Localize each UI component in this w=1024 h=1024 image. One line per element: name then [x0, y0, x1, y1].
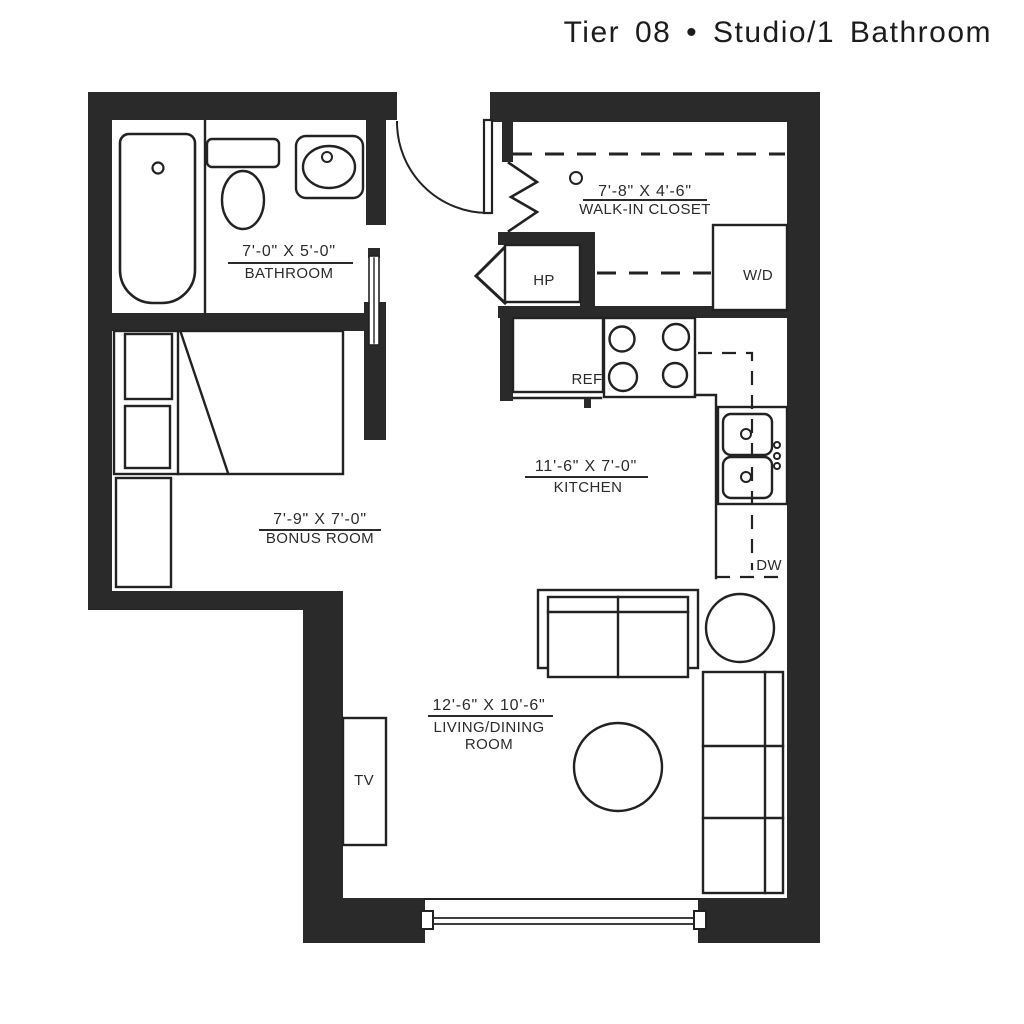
entry-door-swing-arc — [397, 122, 488, 213]
dresser — [116, 478, 171, 587]
bonus-room-name: BONUS ROOM — [266, 530, 374, 547]
heat-pump-label: HP — [533, 272, 554, 289]
pillow — [125, 406, 170, 468]
light-fixture-icon — [570, 172, 582, 184]
floor-plan: Tier 08 • Studio/1 Bathroom — [0, 0, 1024, 1024]
dining-table — [574, 723, 662, 811]
wall-bathroom-south — [88, 313, 386, 331]
wall-top-left — [88, 92, 397, 120]
living-room-name-line1: LIVING/DINING — [433, 719, 544, 736]
bonus-room: 7'-9" X 7'-0" BONUS ROOM — [114, 331, 381, 587]
bonus-room-dimensions: 7'-9" X 7'-0" — [273, 511, 367, 528]
closet-name: WALK-IN CLOSET — [579, 201, 711, 218]
round-chair — [706, 594, 774, 662]
kitchen-name: KITCHEN — [554, 479, 623, 496]
counter-edge — [695, 395, 716, 578]
wall-west — [88, 92, 112, 610]
page-title: Tier 08 • Studio/1 Bathroom — [564, 16, 992, 49]
kitchen: REF DW 11'-6" X 7'-0" KITCHEN — [513, 318, 787, 578]
refrigerator-handle — [584, 399, 591, 408]
wall-bottom-right-segment — [698, 898, 820, 943]
closet-dimensions: 7'-8" X 4'-6" — [598, 183, 692, 200]
bathroom: 7'-0" X 5'-0" BATHROOM — [120, 121, 363, 312]
kitchen-dimensions: 11'-6" X 7'-0" — [535, 458, 637, 475]
pillow — [125, 334, 172, 399]
window-end-cap — [421, 911, 433, 929]
wall-bonus-south — [88, 591, 343, 610]
wall-closet-stub — [502, 120, 513, 162]
entry-door-leaf — [484, 120, 492, 213]
dishwasher-label: DW — [756, 557, 782, 574]
closet-accordion-door — [509, 163, 537, 231]
shelf-unit — [703, 672, 783, 893]
wall-bottom-left-segment — [303, 898, 425, 943]
toilet-tank — [207, 139, 279, 167]
hp-bifold-door — [476, 247, 505, 303]
washer-dryer-label: W/D — [743, 267, 773, 284]
wall-kitchen-west — [500, 318, 513, 401]
bathtub — [120, 134, 195, 303]
window-end-cap — [694, 911, 706, 929]
refrigerator-label: REF — [572, 371, 603, 388]
living-room-name-line2: ROOM — [465, 736, 513, 753]
bathroom-dimensions: 7'-0" X 5'-0" — [242, 243, 336, 260]
wall-hp-east — [580, 232, 595, 318]
tv-label: TV — [354, 772, 374, 789]
wall-bathroom-east-upper — [366, 118, 386, 225]
toilet-bowl — [222, 171, 264, 229]
bathroom-name: BATHROOM — [245, 265, 334, 282]
wall-top-right — [490, 92, 820, 122]
wall-living-west — [303, 610, 343, 943]
wall-east — [787, 92, 820, 943]
hp-closet: HP — [505, 245, 580, 302]
living-room-dimensions: 12'-6" X 10'-6" — [432, 697, 545, 714]
window — [421, 899, 706, 929]
living-dining-room: TV 12'-6" X 10'-6" LIVING/DINING ROOM — [343, 590, 783, 893]
